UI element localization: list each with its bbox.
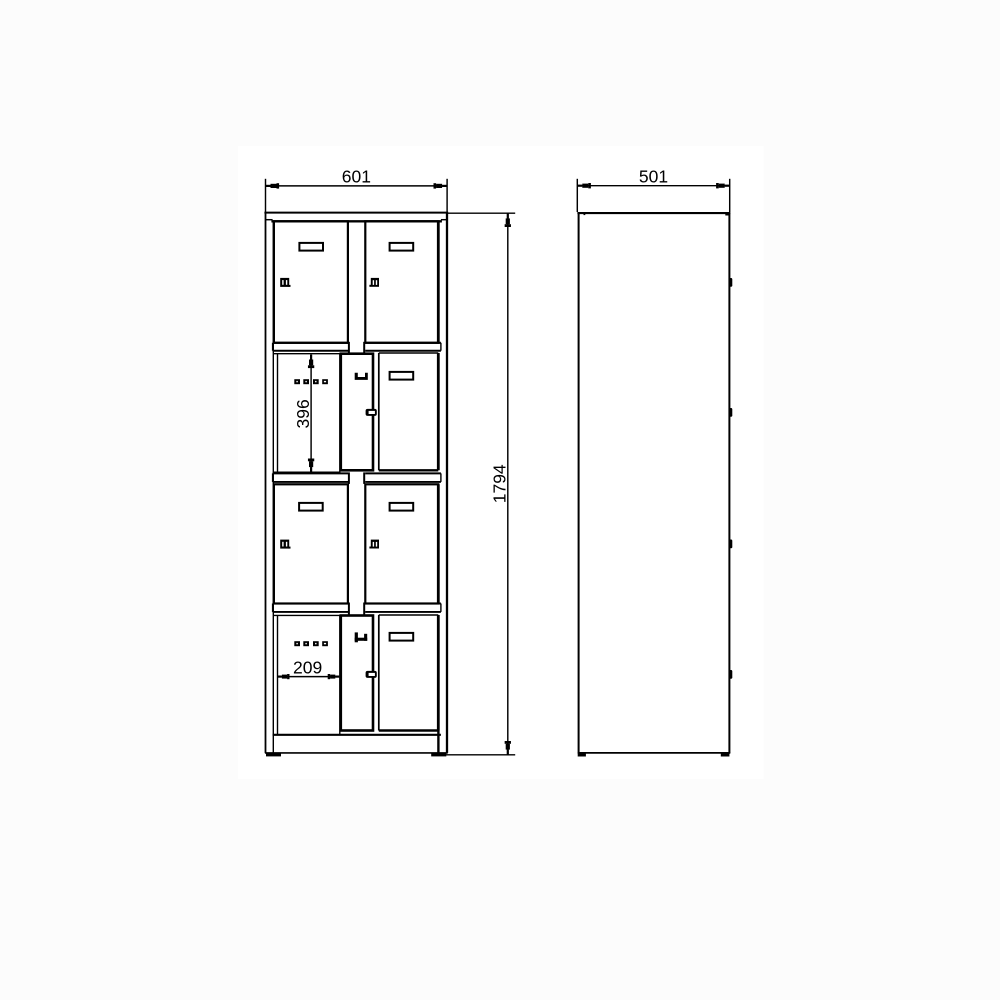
svg-text:209: 209 [293,657,322,677]
svg-text:601: 601 [342,167,371,187]
svg-text:396: 396 [293,399,313,428]
svg-text:1794: 1794 [490,464,510,503]
svg-text:501: 501 [639,166,668,186]
